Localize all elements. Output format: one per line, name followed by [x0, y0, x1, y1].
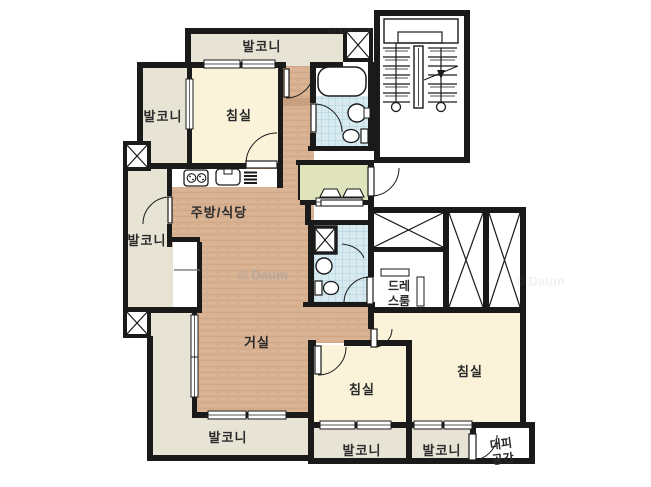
hallway-bedrooms — [313, 307, 374, 343]
toilet-icon — [315, 281, 339, 295]
door-leaf — [367, 277, 373, 304]
wardrobe-icon — [449, 213, 483, 307]
stove-icon — [184, 170, 208, 186]
shaft-icon — [314, 227, 336, 253]
label-balcony-left: 발코니 — [128, 233, 167, 249]
label-dress-room-line2: 스룸 — [388, 294, 410, 309]
wardrobe-icon — [489, 213, 520, 307]
door-swing-arc — [371, 168, 399, 196]
bathtub-icon — [318, 67, 366, 96]
label-balcony-top: 발코니 — [243, 39, 282, 55]
pantry-nook — [314, 205, 368, 221]
toilet-icon — [343, 129, 368, 143]
label-bedroom-top: 침실 — [226, 108, 252, 124]
washbasin-icon — [316, 258, 332, 274]
label-kitchen-dining: 주방/식당 — [191, 205, 247, 221]
watermark: © Daum — [328, 24, 370, 36]
label-dress-room-line1: 드레 — [388, 279, 410, 294]
shaft-icon — [125, 143, 149, 169]
label-bedroom-center: 침실 — [349, 382, 375, 398]
door-leaf — [168, 197, 172, 223]
pantry-closet — [173, 242, 200, 307]
label-shelter: 대피 공간 — [489, 436, 515, 468]
shaft-icon — [125, 310, 149, 336]
staircase-icon — [377, 13, 467, 160]
sink-icon — [216, 169, 240, 185]
label-living-room: 거실 — [244, 335, 270, 351]
door-leaf — [246, 161, 277, 168]
door-leaf — [371, 329, 377, 347]
washbasin-icon — [348, 104, 366, 122]
label-balcony-upper-left: 발코니 — [144, 109, 183, 125]
door-leaf — [315, 346, 321, 374]
label-balcony-bottom-left: 발코니 — [209, 430, 248, 446]
label-shelter-line2: 공간 — [491, 451, 515, 469]
door-leaf — [368, 167, 374, 196]
floor-plan: 발코니 발코니 침실 발코니 주방/식당 거실 발코니 드레 스룸 침실 침실 … — [0, 0, 651, 487]
label-balcony-bottom-center: 발코니 — [343, 443, 382, 459]
watermark: © Daum — [515, 274, 564, 289]
label-balcony-bottom-right: 발코니 — [423, 443, 462, 459]
hallway-threshold — [283, 98, 314, 106]
label-bedroom-right: 침실 — [457, 364, 483, 380]
door-leaf — [284, 69, 289, 97]
floor-plan-drawing — [0, 0, 651, 487]
watermark: © Daum — [238, 268, 287, 283]
faucet-icon — [364, 108, 370, 118]
door-leaf — [311, 104, 316, 132]
door-leaf — [469, 434, 476, 460]
storage-closet-icon — [374, 213, 443, 247]
label-dress-room: 드레 스룸 — [388, 279, 410, 309]
